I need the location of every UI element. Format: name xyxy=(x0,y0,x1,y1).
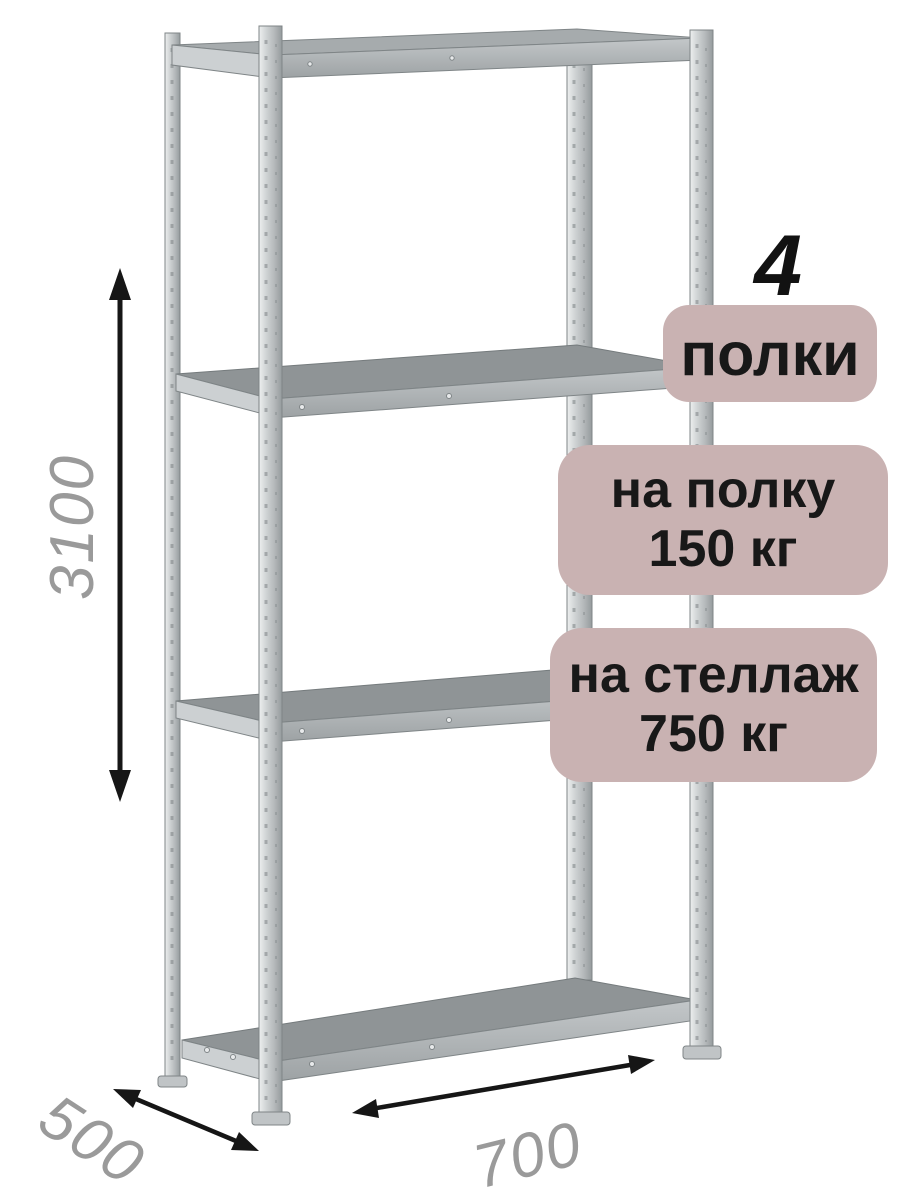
height-arrow xyxy=(109,268,131,802)
post-front-left xyxy=(259,26,282,1118)
foot-front-left xyxy=(252,1112,290,1125)
shelf-load-line2: 150 кг xyxy=(649,520,798,579)
shelf-1 xyxy=(172,29,701,78)
shelf-count-value: 4 xyxy=(728,224,828,308)
rack-load-line1: на стеллаж xyxy=(569,646,859,705)
foot-back-left xyxy=(158,1076,187,1087)
foot-front-right xyxy=(683,1046,721,1059)
product-illustration-canvas: 3100 500 700 4 полки на полку 150 кг на … xyxy=(0,0,900,1200)
shelving-rack-illustration xyxy=(0,0,900,1200)
width-arrow xyxy=(352,1055,655,1118)
shelf-count-label: полки xyxy=(680,319,859,389)
shelf-load-line1: на полку xyxy=(611,461,836,520)
rack-load-badge: на стеллаж 750 кг xyxy=(550,628,877,782)
shelf-count-badge: полки xyxy=(663,305,877,402)
rack-load-line2: 750 кг xyxy=(639,705,788,764)
shelf-2 xyxy=(176,345,701,418)
shelf-load-badge: на полку 150 кг xyxy=(558,445,888,595)
height-dimension-label: 3100 xyxy=(35,451,109,603)
post-back-left xyxy=(165,33,180,1081)
